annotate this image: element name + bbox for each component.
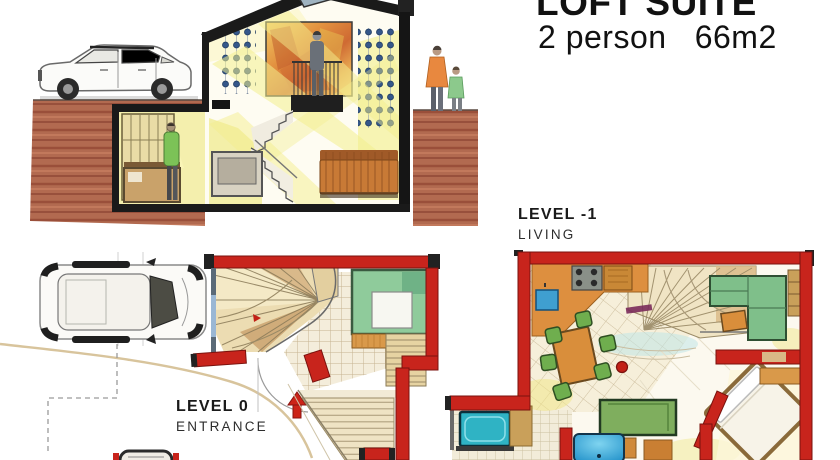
level0-subtitle: ENTRANCE: [176, 419, 268, 434]
suv-side-view: [38, 45, 198, 100]
loft-platform: [291, 95, 343, 112]
column-dot: [617, 362, 628, 373]
bedside-shelf: [760, 368, 800, 384]
level-minus1-label: LEVEL -1 LIVING: [518, 206, 598, 242]
adult-figure: [426, 46, 448, 111]
orange-sofa-section: [320, 150, 398, 198]
lower-floor-cabinet: [212, 152, 262, 196]
house-section: [112, 0, 414, 212]
level-minus1-subtitle: LIVING: [518, 227, 598, 242]
parking-bay-lines: [48, 344, 117, 452]
suv-top-view: [40, 258, 206, 344]
level0-title: LEVEL 0: [176, 398, 268, 416]
basement-bedroom: [122, 114, 184, 202]
architectural-drawing: [0, 0, 840, 460]
sheet-subtitle: 2 person 66m2: [538, 19, 777, 56]
stove: [572, 266, 602, 290]
child-figure: [448, 67, 464, 112]
wall-cabinet: [788, 270, 800, 316]
people-standing: [426, 46, 464, 111]
bathtub: [456, 412, 514, 451]
vanity-counter: [510, 406, 532, 446]
level0-label: LEVEL 0 ENTRANCE: [176, 398, 268, 434]
car-fragment-bottom: [113, 451, 179, 460]
section-view: [30, 0, 478, 226]
coffee-table: [721, 310, 747, 331]
earth-right: [413, 110, 478, 226]
level-minus1-title: LEVEL -1: [518, 206, 598, 224]
loft-suite-plan-sheet: LOFT SUITE 2 person 66m2 LEVEL -1 LIVING…: [0, 0, 840, 460]
level-minus1-plan: [445, 250, 814, 460]
living-corner: [710, 270, 800, 340]
kitchen-sink: [536, 290, 558, 310]
